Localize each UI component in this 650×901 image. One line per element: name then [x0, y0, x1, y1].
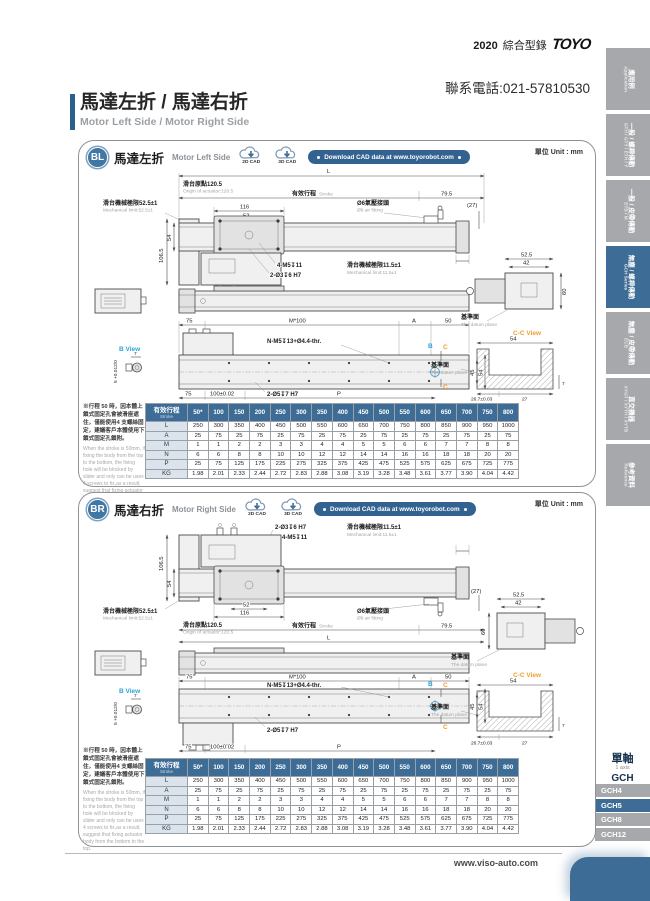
marker-B: B — [428, 681, 433, 688]
dim-mech11-en: Mechanical limit:11.5±1 — [347, 270, 397, 276]
dim-origin-en: Origin of actuator:120.5 — [183, 189, 233, 195]
bl-b-view-detail: B View 7 5 +0.012/0 — [113, 346, 142, 383]
table-cell: 14 — [353, 450, 374, 460]
stroke-col-header: 800 — [498, 759, 519, 777]
sidebar-tab-label-en: Application — [622, 66, 628, 92]
table-row: KG1.982.012.332.442.722.832.883.083.193.… — [146, 824, 519, 834]
sidebar-tab-3[interactable]: 一般 / 皮帶傳動ETB / M — [606, 180, 650, 242]
dim-75a: 75 — [186, 319, 192, 325]
download-cad-link[interactable]: Download CAD data at www.toyorobot.com — [308, 150, 470, 164]
table-cell: 2.88 — [312, 469, 333, 479]
stroke-col-header: 550 — [394, 404, 415, 422]
table-cell: 6 — [394, 441, 415, 451]
table-cell: 2 — [250, 796, 271, 806]
bl-motor-housing — [183, 333, 233, 355]
table-cell: 950 — [477, 422, 498, 432]
sidebar-tab-7[interactable]: 參考資料Reference — [606, 444, 650, 506]
sidebar-tab-label-zh: 一般 / 螺桿傳動 — [627, 123, 634, 167]
table-cell: 25 — [394, 431, 415, 441]
download-cad-link[interactable]: Download CAD data at www.toyorobot.com — [314, 502, 476, 516]
table-cell: 6 — [188, 450, 209, 460]
table-row: P257512517522527532537542547552557562567… — [146, 460, 519, 470]
table-cell: 7 — [456, 441, 477, 451]
row-label-cell: N — [146, 805, 188, 815]
table-cell: 10 — [291, 805, 312, 815]
page-title: 馬達左折 / 馬達右折 — [80, 92, 249, 114]
cloud-download-icon — [274, 146, 300, 161]
table-cell: 25 — [477, 786, 498, 796]
table-cell: 775 — [498, 815, 519, 825]
table-cell: 3 — [291, 796, 312, 806]
dim-27b: 27 — [522, 397, 528, 402]
dim-origin-en: Origin of actuator:120.5 — [183, 630, 233, 636]
dim-45: 45 — [470, 370, 476, 376]
sidebar-tab-label-en: Reference — [622, 463, 628, 486]
table-cell: 550 — [312, 777, 333, 787]
table-cell: 450 — [270, 777, 291, 787]
br-motor-end — [545, 619, 575, 643]
row-label-cell: M — [146, 796, 188, 806]
table-cell: 8 — [250, 450, 271, 460]
download-cad-label: Download CAD data at www.toyorobot.com — [330, 506, 460, 513]
table-cell: 8 — [250, 805, 271, 815]
table-cell: 2.01 — [208, 824, 229, 834]
table-cell: 6 — [394, 796, 415, 806]
datum-en-2: The datum plane — [431, 712, 467, 718]
table-cell: 1.98 — [188, 469, 209, 479]
stroke-col-header: 350 — [312, 404, 333, 422]
footer-divider — [65, 853, 562, 854]
dim-27: (27) — [471, 589, 481, 595]
table-cell: 3 — [270, 441, 291, 451]
table-cell: 8 — [498, 796, 519, 806]
table-cell: 350 — [229, 422, 250, 432]
table-cell: 475 — [374, 815, 395, 825]
bl-right-end-cap — [456, 221, 469, 253]
dim-pin3: 2-Ø3↧6 H7 — [275, 524, 307, 531]
table-cell: 2.33 — [229, 469, 250, 479]
row-label-cell: L — [146, 422, 188, 432]
dim-26-7: 26.7±0.03 — [471, 741, 493, 747]
table-cell: 900 — [456, 777, 477, 787]
table-cell: 18 — [456, 805, 477, 815]
table-cell: 4.04 — [477, 824, 498, 834]
model-tab-gch5[interactable]: GCH5 — [595, 799, 650, 812]
download-cad-label: Download CAD data at www.toyorobot.com — [324, 154, 454, 161]
br-air-fitting — [424, 598, 438, 605]
table-cell: 575 — [415, 460, 436, 470]
table-cell: 325 — [312, 815, 333, 825]
table-cell: 625 — [436, 815, 457, 825]
br-rail-elevation — [179, 653, 469, 673]
table-cell: 75 — [374, 786, 395, 796]
dim-mech52-zh: 滑台機械極限52.5±1 — [103, 607, 158, 615]
table-cell: 25 — [353, 431, 374, 441]
dim-nm5: N-M5↧13+Ø4.4-thr. — [267, 338, 322, 345]
table-cell: 225 — [270, 460, 291, 470]
table-cell: 650 — [353, 777, 374, 787]
table-cell: 25 — [436, 431, 457, 441]
table-cell: 2.88 — [312, 824, 333, 834]
b-view-label: B View — [119, 688, 141, 695]
sidebar-tab-label-zh: 一般 / 皮帶傳動 — [627, 189, 634, 233]
br-b-view-detail: B View 7 5 +0.012/0 — [113, 688, 142, 725]
dim-100: 100±0.02 — [210, 392, 234, 398]
bl-end-view: 52.5 42 60 基準面 The datum plane C-C View — [460, 253, 568, 338]
table-cell: 14 — [374, 805, 395, 815]
table-cell: 3.90 — [456, 824, 477, 834]
cc-view-label: C-C View — [513, 672, 542, 679]
table-cell: 14 — [353, 805, 374, 815]
table-cell: 3.48 — [394, 824, 415, 834]
table-cell: 10 — [291, 450, 312, 460]
table-cell: 75 — [250, 431, 271, 441]
sidebar-tab-label-en: ETB / M — [622, 202, 628, 220]
stroke-col-header: 500 — [374, 759, 395, 777]
table-cell: 250 — [188, 777, 209, 787]
bl-title-en: Motor Left Side — [172, 153, 230, 162]
dim-L: L — [327, 169, 331, 175]
stroke-col-header: 150 — [229, 759, 250, 777]
table-cell: 650 — [353, 422, 374, 432]
table-cell: 25 — [436, 786, 457, 796]
table-cell: 6 — [188, 805, 209, 815]
dim-m100: M*100 — [289, 675, 306, 681]
datum-zh-2: 基準面 — [430, 361, 449, 369]
dim-60: 60 — [481, 629, 487, 635]
table-row: A25752575257525752575257525752575 — [146, 431, 519, 441]
table-row: N6688101012121414161618182020 — [146, 805, 519, 815]
table-cell: 3 — [291, 441, 312, 451]
stroke-col-header: 200 — [250, 404, 271, 422]
table-cell: 25 — [270, 786, 291, 796]
table-cell: 1000 — [498, 777, 519, 787]
table-cell: 500 — [291, 422, 312, 432]
table-cell: 75 — [332, 431, 353, 441]
dim-tap: 4-M5↧11 — [282, 534, 308, 541]
dim-7b: 7 — [562, 381, 565, 387]
br-slider-plate — [214, 566, 284, 604]
dim-52: 52 — [243, 603, 249, 609]
table-cell: 4 — [312, 796, 333, 806]
table-header-row: 有效行程Stroke50*100150200250300350400450500… — [146, 404, 519, 422]
dim-54c: 54 — [510, 337, 517, 343]
bl-top-view: L 滑台原點120.5 Origin of actuator:120.5 有效行… — [103, 169, 484, 297]
row-label-cell: N — [146, 450, 188, 460]
table-cell: 625 — [436, 460, 457, 470]
dim-mech52-en: Mechanical limit:52.5±1 — [103, 208, 153, 214]
br-end-view: 52.5 42 60 基準面 The datum plane C-C View — [450, 593, 584, 680]
stroke-col-header: 750 — [477, 404, 498, 422]
table-cell: 18 — [436, 450, 457, 460]
stroke-col-header: 350 — [312, 759, 333, 777]
dim-air-zh: Ø6氣壓接頭 — [357, 199, 390, 207]
table-cell: 800 — [415, 422, 436, 432]
stroke-col-header: 250 — [270, 759, 291, 777]
dim-A: A — [412, 675, 416, 681]
table-cell: 425 — [353, 815, 374, 825]
table-cell: 3.61 — [415, 469, 436, 479]
datum-en-1: The datum plane — [451, 662, 487, 668]
table-cell: 600 — [332, 422, 353, 432]
table-header-row: 有效行程Stroke50*100150200250300350400450500… — [146, 759, 519, 777]
section-motor-left: BL 馬達左折 Motor Left Side 2D CAD 3D CAD Do… — [78, 140, 596, 487]
sidebar-tab-1[interactable]: 應用例Application — [606, 48, 650, 110]
row-label-cell: A — [146, 786, 188, 796]
dim-27: (27) — [467, 203, 477, 209]
cloud-download-icon — [280, 498, 306, 513]
dim-stroke-zh: 有效行程 — [292, 622, 316, 630]
table-cell: 375 — [332, 815, 353, 825]
table-cell: 2 — [250, 441, 271, 451]
dim-52-5: 52.5 — [513, 593, 524, 599]
sidebar-tab-label-en: XYGT / XYTH / XYTB — [622, 386, 628, 433]
datum-en-1: The datum plane — [461, 322, 497, 328]
marker-C-bottom: C — [443, 384, 448, 391]
sidebar-tab-label-zh: 應用例 — [627, 69, 634, 89]
table-cell: 75 — [374, 431, 395, 441]
sidebar-tab-6[interactable]: 直交機器XYGT / XYTH / XYTB — [606, 378, 650, 440]
dim-pin5: 2-Ø5↧7 H7 — [267, 391, 299, 398]
table-cell: 475 — [374, 460, 395, 470]
bl-motor-body — [201, 253, 281, 285]
table-cell: 7 — [436, 796, 457, 806]
table-cell: 225 — [270, 815, 291, 825]
table-cell: 1000 — [498, 422, 519, 432]
table-cell: 6 — [415, 796, 436, 806]
dim-mech11-zh: 滑台機械極限11.5±1 — [347, 261, 402, 269]
table-row: N6688101012121414161618182020 — [146, 450, 519, 460]
stroke-col-header: 200 — [250, 759, 271, 777]
table-cell: 8 — [477, 796, 498, 806]
table-cell: 20 — [498, 450, 519, 460]
dim-79-5: 79.5 — [441, 192, 452, 198]
dim-tap: 4-M5↧11 — [277, 262, 303, 269]
sidebar-tab-4[interactable]: 無塵 / 螺桿傳動GCH Series — [606, 246, 650, 308]
table-cell: 8 — [477, 441, 498, 451]
model-tab-gch12[interactable]: GCH12 — [595, 828, 650, 841]
marker-C-top: C — [443, 682, 448, 689]
stroke-col-header: 600 — [415, 759, 436, 777]
stroke-col-header: 600 — [415, 404, 436, 422]
dim-air-en: Ø6 air fitting — [357, 616, 383, 622]
table-cell: 1 — [188, 796, 209, 806]
dim-54: 54 — [167, 580, 173, 587]
table-cell: 75 — [498, 431, 519, 441]
dim-mech52-zh: 滑台機械極限52.5±1 — [103, 199, 158, 207]
table-cell: 2.83 — [291, 469, 312, 479]
bl-front-elevation — [95, 286, 469, 313]
model-tab-gch4[interactable]: GCH4 — [595, 784, 650, 797]
dim-mech52-en: Mechanical limit:52.5±1 — [103, 616, 153, 622]
table-row: M1122334455667788 — [146, 796, 519, 806]
table-cell: 25 — [312, 431, 333, 441]
footer-url: www.viso-auto.com — [454, 858, 538, 868]
page-title-block: 馬達左折 / 馬達右折 Motor Left Side / Motor Righ… — [70, 92, 249, 128]
table-cell: 775 — [498, 460, 519, 470]
br-note-zh: ※行程 50 時，因本體上鎖式固定孔會被滑座遮住，僅能使用4 支螺絲固定，建議客… — [83, 748, 145, 788]
table-cell: 1.98 — [188, 824, 209, 834]
bl-motor-end — [475, 279, 505, 303]
table-cell: 25 — [188, 460, 209, 470]
table-cell: 75 — [415, 431, 436, 441]
sidebar-tab-5[interactable]: 無塵 / 皮帶傳動ECB — [606, 312, 650, 374]
table-cell: 850 — [436, 422, 457, 432]
br-motor-body — [201, 535, 281, 567]
table-cell: 3 — [270, 796, 291, 806]
marker-C-top: C — [443, 344, 448, 351]
page-subtitle: Motor Left Side / Motor Right Side — [80, 116, 249, 128]
table-cell: 25 — [270, 431, 291, 441]
bl-air-fitting — [424, 216, 438, 223]
table-cell: 2.33 — [229, 824, 250, 834]
table-cell: 750 — [394, 422, 415, 432]
dim-106-5: 106.5 — [159, 556, 165, 571]
table-cell: 25 — [312, 786, 333, 796]
table-cell: 2.72 — [270, 469, 291, 479]
dim-tol5: 5 +0.012/0 — [113, 360, 119, 383]
dim-106-5: 106.5 — [159, 248, 165, 263]
dim-7a: 7 — [134, 693, 137, 699]
table-cell: 2 — [229, 796, 250, 806]
datum-zh-1: 基準面 — [450, 653, 469, 661]
br-note: ※行程 50 時，因本體上鎖式固定孔會被滑座遮住，僅能使用4 支螺絲固定，建議客… — [83, 748, 145, 853]
table-cell: 3.08 — [332, 469, 353, 479]
dim-7a: 7 — [134, 351, 137, 357]
br-top-view: 2-Ø3↧6 H7 4-M5↧11 滑台機械極限11.5±1 Mechanica… — [103, 523, 484, 642]
dim-26-7: 26.7±0.03 — [471, 397, 493, 402]
table-cell: 25 — [188, 786, 209, 796]
dim-42: 42 — [523, 261, 529, 267]
cloud-download-icon — [244, 498, 270, 513]
table-cell: 3.77 — [436, 469, 457, 479]
table-cell: 25 — [394, 786, 415, 796]
table-cell: 18 — [436, 805, 457, 815]
marker-C-bottom: C — [443, 724, 448, 731]
sidebar-tab-label-zh: 無塵 / 皮帶傳動 — [627, 321, 634, 365]
table-cell: 750 — [394, 777, 415, 787]
dim-nm5: N-M5↧13+Ø4.4-thr. — [267, 682, 322, 689]
table-cell: 5 — [374, 441, 395, 451]
sidebar-tab-label-zh: 無塵 / 螺桿傳動 — [627, 255, 634, 299]
table-cell: 3.61 — [415, 824, 436, 834]
br-stroke-table: 有效行程Stroke50*100150200250300350400450500… — [145, 758, 519, 834]
table-cell: 3.28 — [374, 469, 395, 479]
table-cell: 800 — [415, 777, 436, 787]
table-cell: 300 — [208, 422, 229, 432]
dim-stroke-zh: 有效行程 — [292, 190, 316, 198]
table-cell: 6 — [208, 450, 229, 460]
dim-52-5: 52.5 — [521, 253, 532, 259]
table-row: L250300350400450500550600650700750800850… — [146, 777, 519, 787]
b-view-label: B View — [119, 346, 141, 353]
sidebar-tab-label-zh: 直交機器 — [627, 396, 634, 422]
model-tab-gch8[interactable]: GCH8 — [595, 813, 650, 826]
sidebar-tab-label-en: ECB — [622, 338, 628, 348]
table-cell: 75 — [456, 431, 477, 441]
cc-view-label: C-C View — [513, 330, 542, 337]
table-cell: 3.08 — [332, 824, 353, 834]
table-cell: 525 — [394, 815, 415, 825]
br-motor-housing — [183, 723, 233, 745]
datum-en-2: The datum plane — [431, 370, 467, 376]
table-cell: 20 — [477, 450, 498, 460]
table-cell: 400 — [250, 422, 271, 432]
table-cell: 4.42 — [498, 469, 519, 479]
bl-gearbox-end — [505, 273, 553, 309]
dim-42: 42 — [515, 601, 521, 607]
table-cell: 275 — [291, 815, 312, 825]
table-cell: 7 — [456, 796, 477, 806]
table-cell: 700 — [374, 777, 395, 787]
bl-stroke-table: 有效行程Stroke50*100150200250300350400450500… — [145, 403, 519, 479]
table-cell: 16 — [415, 450, 436, 460]
sidebar-tab-label-en: GTH / GTY / ETH / Y — [622, 123, 628, 168]
table-cell: 75 — [208, 815, 229, 825]
table-cell: 6 — [208, 805, 229, 815]
table-cell: 125 — [229, 460, 250, 470]
bl-bottom-view: 75 M*100 A 50 N-M5↧13+Ø4.4-thr. B C C — [179, 319, 485, 401]
dim-P: P — [337, 392, 341, 398]
br-unit-label: 單位 Unit : mm — [535, 499, 583, 509]
br-note-en: When the stroke is 50mm, if fixing the b… — [83, 790, 145, 853]
row-label-cell: P — [146, 815, 188, 825]
table-cell: 400 — [250, 777, 271, 787]
dim-75b: 75 — [185, 392, 191, 398]
stroke-col-header: 700 — [456, 404, 477, 422]
table-cell: 75 — [208, 786, 229, 796]
table-cell: 2.44 — [250, 469, 271, 479]
table-cell: 16 — [415, 805, 436, 815]
dim-75b: 75 — [185, 745, 191, 751]
table-cell: 16 — [394, 805, 415, 815]
dim-7b: 7 — [562, 723, 565, 729]
table-cell: 350 — [229, 777, 250, 787]
dim-A: A — [412, 319, 416, 325]
dim-pin5: 2-Ø5↧7 H7 — [267, 727, 299, 734]
sidebar-tab-label-en: GCH Series — [622, 264, 628, 290]
stroke-col-header: 50* — [188, 759, 209, 777]
dim-air-zh: Ø6氣壓接頭 — [357, 607, 390, 615]
table-cell: 300 — [208, 777, 229, 787]
stroke-col-header: 100 — [208, 759, 229, 777]
stroke-col-header: 100 — [208, 404, 229, 422]
br-right-end-cap — [456, 567, 469, 599]
table-cell: 5 — [374, 796, 395, 806]
bl-technical-drawing: L 滑台原點120.5 Origin of actuator:120.5 有效行… — [79, 163, 597, 401]
dim-50: 50 — [445, 319, 451, 325]
table-cell: 75 — [415, 786, 436, 796]
stroke-col-header: 750 — [477, 759, 498, 777]
bl-note-zh: ※行程 50 時，因本體上鎖式固定孔會被滑座遮住，僅能使用4 支螺絲固定，建議客… — [83, 404, 145, 444]
sidebar-tab-label-zh: 參考資料 — [627, 462, 634, 488]
table-cell: 550 — [312, 422, 333, 432]
catalog-year: 2020 — [473, 40, 497, 52]
title-accent-bar — [70, 94, 75, 130]
dim-stroke-en: Stroke — [319, 624, 333, 630]
toyo-logo: TOYO — [551, 36, 591, 53]
stroke-col-header: 150 — [229, 404, 250, 422]
stroke-col-header: 550 — [394, 759, 415, 777]
sidebar-tab-2[interactable]: 一般 / 螺桿傳動GTH / GTY / ETH / Y — [606, 114, 650, 176]
table-cell: 14 — [374, 450, 395, 460]
table-cell: 850 — [436, 777, 457, 787]
table-cell: 3.19 — [353, 469, 374, 479]
table-cell: 175 — [250, 815, 271, 825]
table-cell: 12 — [312, 805, 333, 815]
stroke-col-header: 650 — [436, 759, 457, 777]
table-cell: 8 — [229, 805, 250, 815]
